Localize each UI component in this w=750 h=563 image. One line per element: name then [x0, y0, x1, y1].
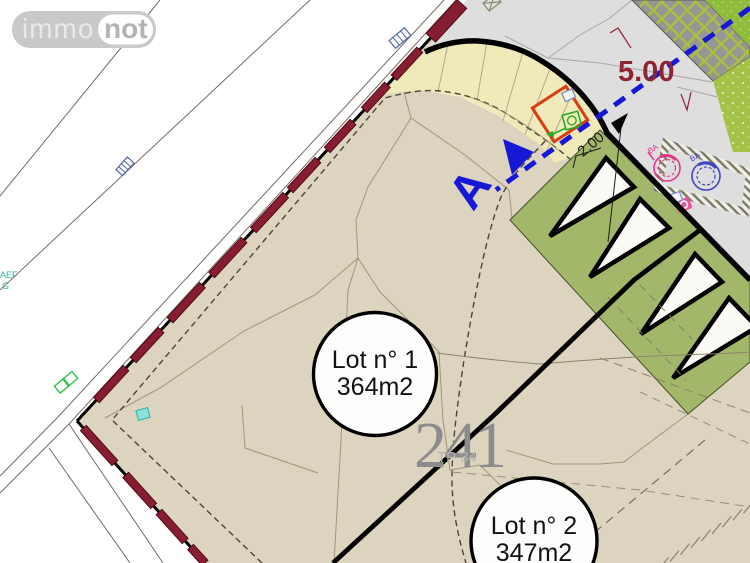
- svg-text:immo: immo: [22, 13, 94, 44]
- svg-text:TP 34: TP 34: [437, 449, 477, 466]
- svg-text:not: not: [104, 13, 148, 44]
- svg-text:5.00: 5.00: [618, 56, 674, 88]
- svg-text:G: G: [2, 281, 9, 291]
- svg-text:364m2: 364m2: [337, 373, 413, 401]
- svg-text:241: 241: [414, 409, 504, 482]
- svg-text:Lot n° 1: Lot n° 1: [332, 346, 418, 374]
- svg-text:AEF: AEF: [0, 270, 18, 280]
- svg-text:Lot n° 2: Lot n° 2: [491, 512, 577, 540]
- svg-text:347m2: 347m2: [496, 539, 572, 563]
